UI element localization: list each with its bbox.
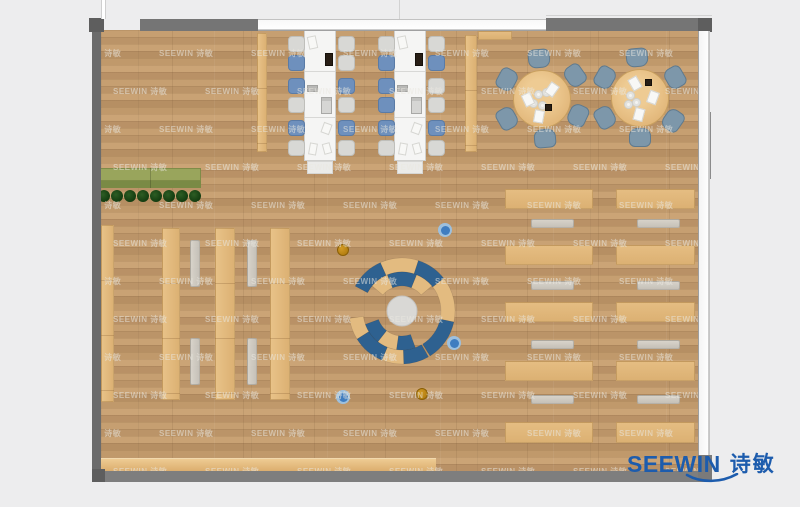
- library-floor-plan: SEEWIN 诗敏SEEWIN 诗敏SEEWIN 诗敏SEEWIN 诗敏SEEW…: [0, 0, 800, 507]
- right-wall-tick-5: [698, 411, 707, 423]
- door-frame-line: [101, 0, 106, 19]
- right-wall-tick-1: [699, 98, 705, 112]
- right-wall-block: [699, 112, 711, 179]
- right-wall-tick-2: [698, 223, 707, 232]
- logo-swoosh-icon: [685, 473, 739, 483]
- right-wall-tick-4: [698, 367, 707, 375]
- grid-line-top: [399, 0, 400, 19]
- bottom-wall: [92, 471, 712, 482]
- left-wall: [92, 18, 101, 481]
- room-floor: [101, 30, 698, 472]
- right-window: [698, 31, 710, 455]
- right-wall-tick-3: [698, 312, 707, 327]
- top-right-corner: [698, 18, 712, 32]
- seewin-logo: SEEWIN 诗敏: [627, 451, 776, 483]
- facade-line: [546, 15, 712, 16]
